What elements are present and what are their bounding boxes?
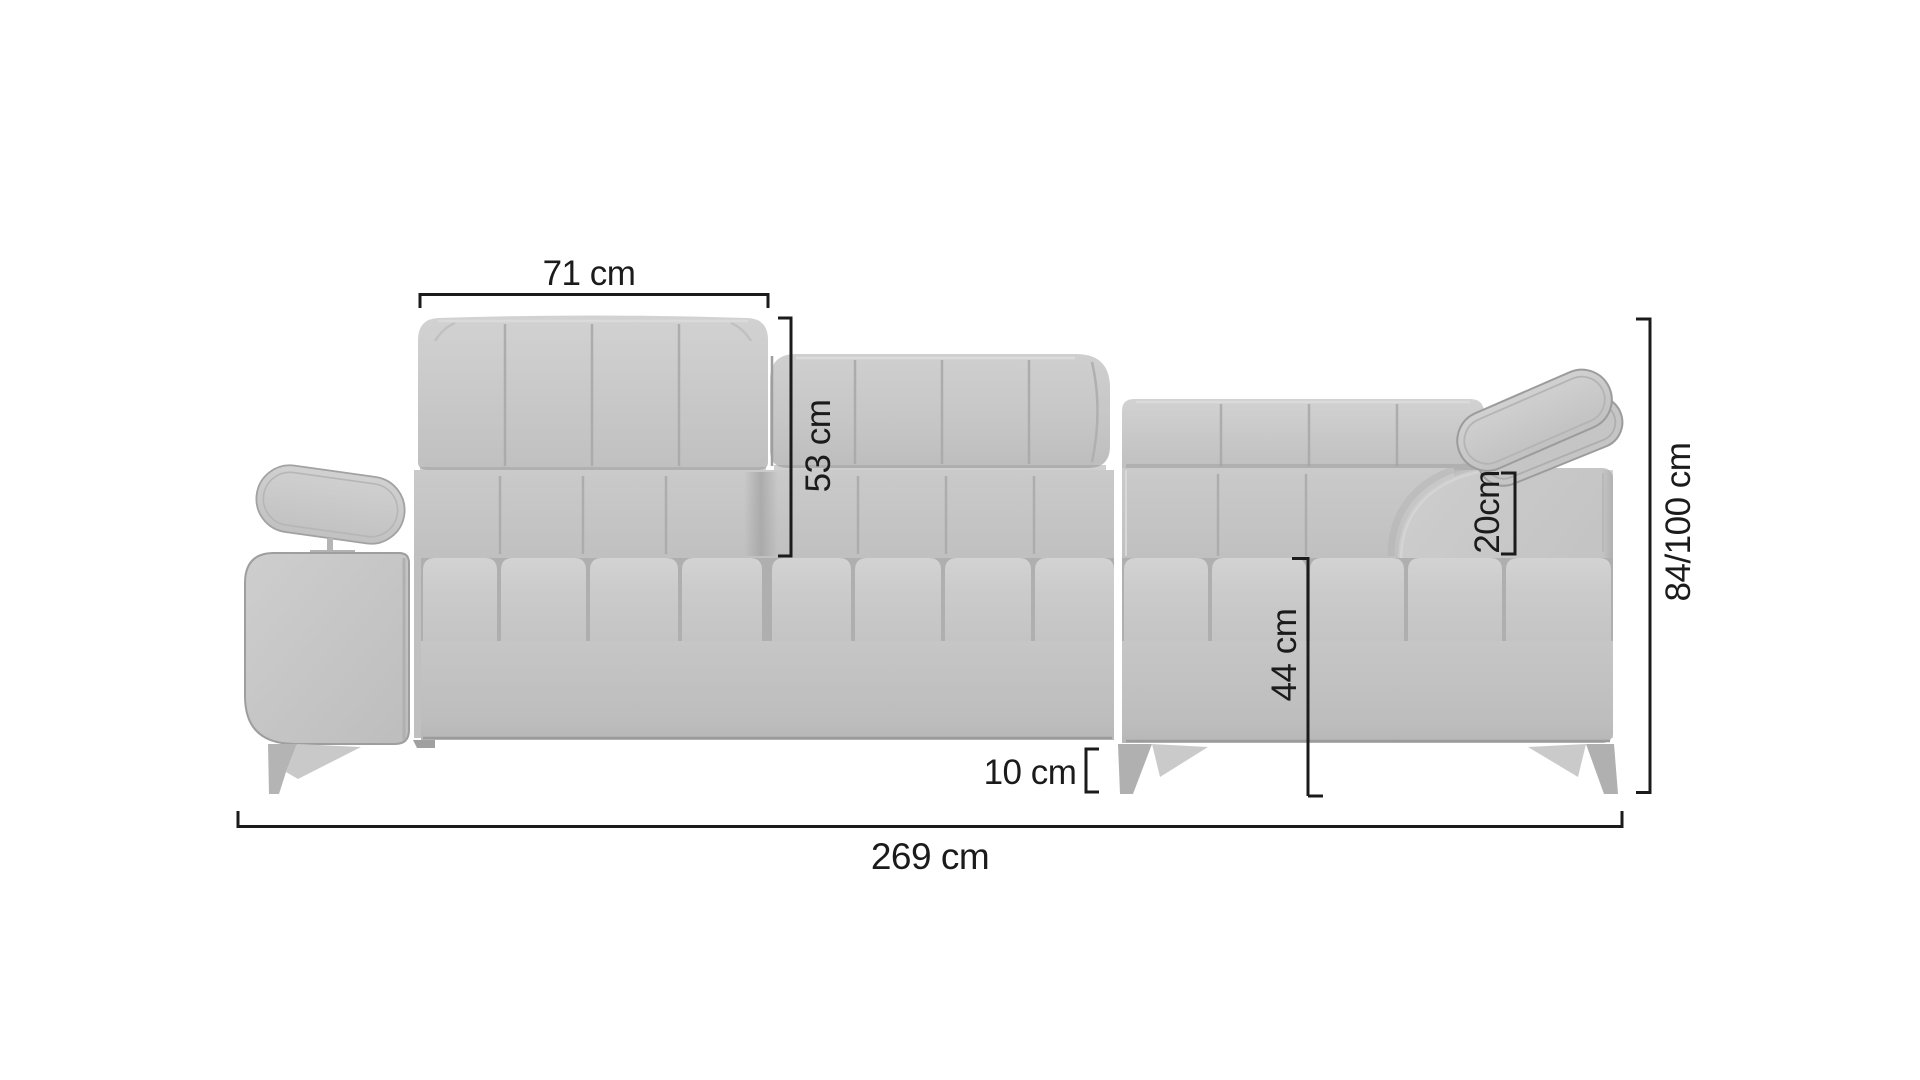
- svg-text:71 cm: 71 cm: [543, 254, 636, 293]
- svg-text:20cm: 20cm: [1468, 470, 1507, 554]
- svg-text:10 cm: 10 cm: [984, 753, 1077, 792]
- svg-text:84/100 cm: 84/100 cm: [1659, 443, 1698, 602]
- svg-text:44 cm: 44 cm: [1265, 609, 1304, 702]
- svg-text:269 cm: 269 cm: [871, 836, 989, 877]
- svg-text:53 cm: 53 cm: [799, 400, 838, 493]
